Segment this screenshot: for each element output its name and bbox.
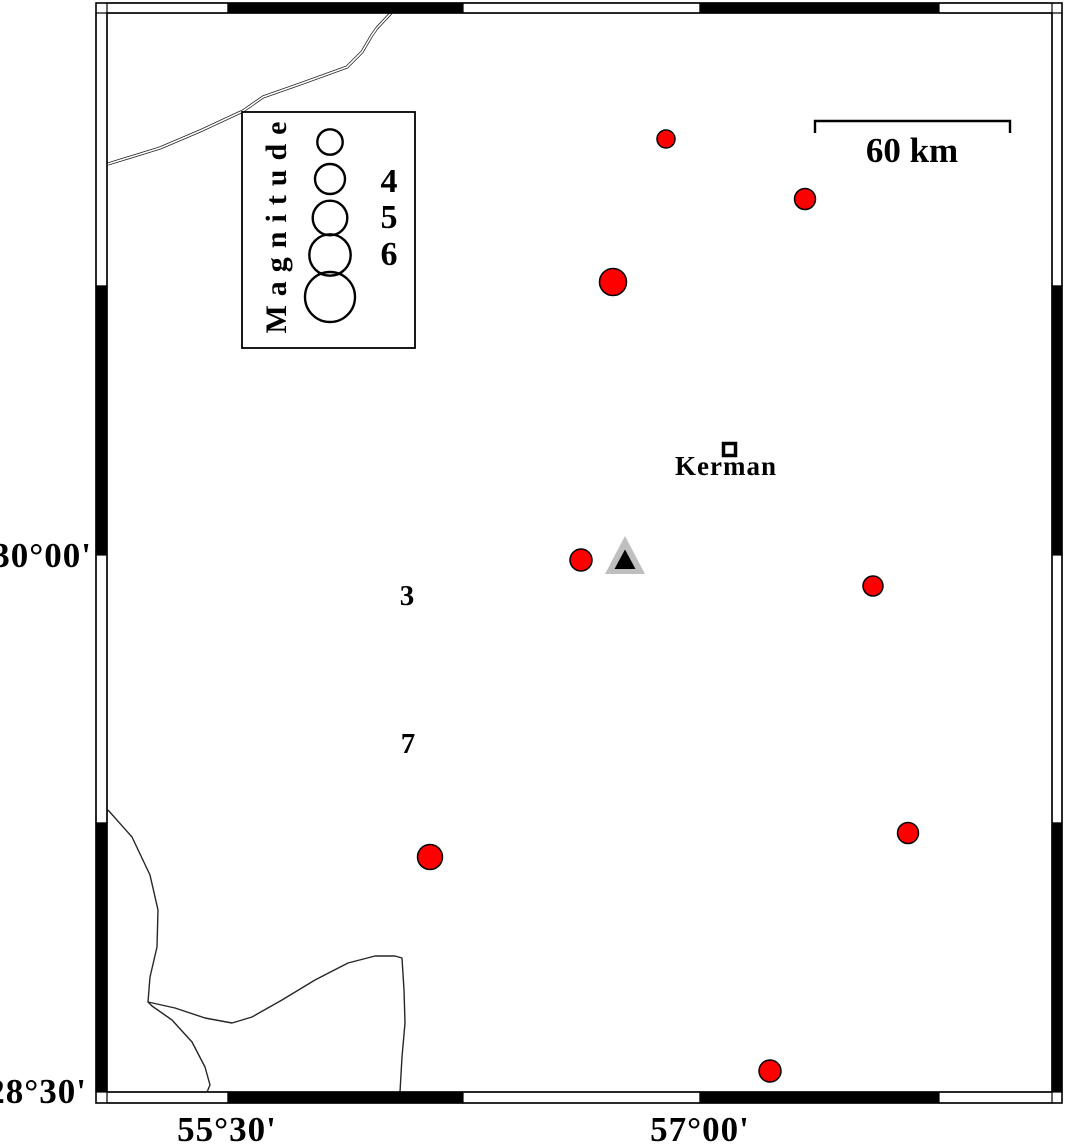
frame-segment-bottom [939,1092,1052,1103]
longitude-label: 55°30' [177,1110,277,1145]
seismicity-map-figure: 60 km Magnitude 456 Kerman 37 30°00'28°3… [0,0,1066,1145]
latitude-label: 30°00' [0,536,92,575]
epicenter-marker [657,130,675,148]
frame-segment-left [96,555,107,823]
frame-segment-top [939,3,1052,13]
zone-number-label: 3 [400,580,415,612]
epicenter-marker [418,845,443,870]
frame-segment-right [1052,13,1062,286]
axis-coordinate-labels: 30°00'28°30'55°30'57°00' [0,536,750,1145]
frame-segment-bottom [700,1092,939,1103]
epicenter-marker [898,823,919,844]
epicenter-marker [795,189,816,210]
station-triangle-marker [605,536,645,574]
frame-segment-right [1052,823,1062,1092]
scale-bar-label: 60 km [866,131,958,170]
legend-magnitude-number: 5 [381,199,398,236]
frame-segment-left [96,823,107,1092]
epicenter-marker [600,269,627,296]
frame-segment-left [96,286,107,555]
scale-bar: 60 km [815,121,1010,170]
map-canvas: 60 km Magnitude 456 Kerman 37 30°00'28°3… [0,0,1066,1145]
boundary-line-southwest [108,810,210,1092]
legend-magnitude-number: 4 [381,163,398,200]
frame-segment-top [107,3,228,13]
epicenter-marker [759,1060,781,1082]
frame-segment-top [463,3,700,13]
epicenter-marker [863,576,883,596]
magnitude-legend: Magnitude 456 [242,112,415,348]
latitude-label: 28°30' [0,1072,87,1111]
legend-title: Magnitude [260,112,293,333]
frame-segment-top [700,3,939,13]
legend-magnitude-number: 6 [381,236,398,273]
city-marker-kerman: Kerman [675,444,777,482]
zone-number-label: 7 [401,728,416,760]
frame-segment-top [228,3,463,13]
frame-segment-bottom [107,1092,228,1103]
frame-segment-right [1052,555,1062,823]
legend-magnitude-labels: 456 [381,163,398,273]
epicenter-marker [570,549,592,571]
zone-number-labels: 37 [400,580,416,760]
frame-segment-right [1052,286,1062,555]
frame-segment-left [96,13,107,286]
frame-segment-bottom [228,1092,463,1103]
longitude-label: 57°00' [650,1110,750,1145]
city-label: Kerman [675,451,777,481]
epicenter-markers [418,130,919,1082]
boundary-line-south [148,956,405,1092]
frame-segment-bottom [463,1092,700,1103]
